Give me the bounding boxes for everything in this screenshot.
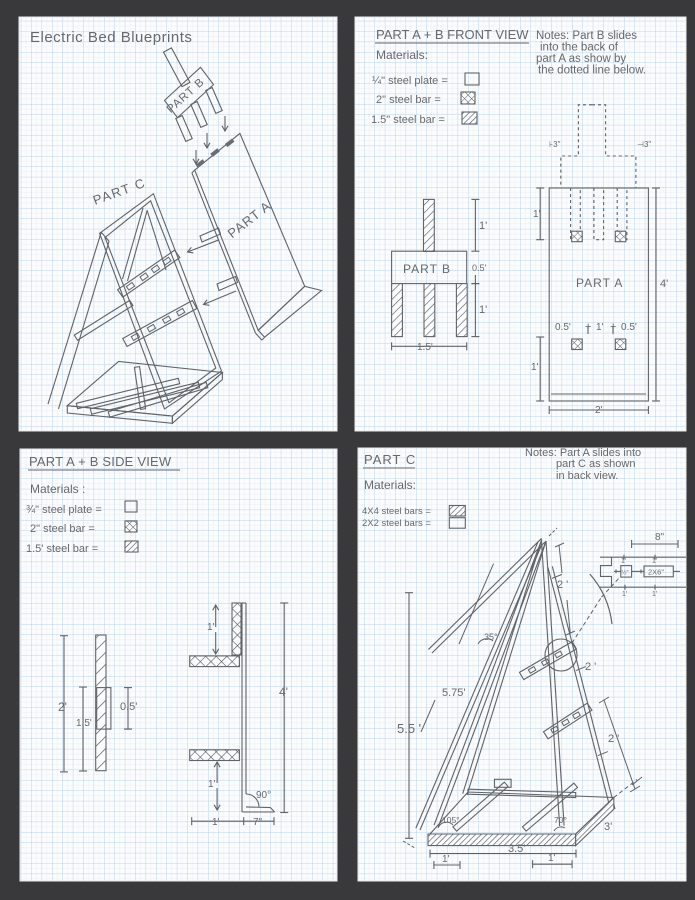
svg-text:1': 1'	[442, 854, 450, 865]
svg-text:4': 4'	[660, 278, 668, 290]
svg-text:0.5': 0.5'	[555, 322, 571, 333]
svg-text:1.5" steel bar =: 1.5" steel bar =	[371, 114, 445, 126]
svg-text:35°: 35°	[484, 632, 498, 642]
svg-text:1': 1'	[479, 304, 487, 316]
svg-text:1.5': 1.5'	[417, 342, 433, 353]
svg-text:part C as shown: part C as shown	[556, 458, 635, 470]
svg-text:1': 1'	[622, 591, 627, 598]
svg-text:¾" steel plate =: ¾" steel plate =	[26, 504, 102, 516]
svg-text:PART A: PART A	[576, 276, 623, 290]
svg-text:Materials :: Materials :	[30, 482, 85, 496]
svg-text:the dotted line below.: the dotted line below.	[538, 65, 646, 77]
svg-text:0.5': 0.5'	[621, 322, 637, 333]
svg-text:1': 1'	[208, 779, 216, 790]
svg-text:2X2 steel bars =: 2X2 steel bars =	[362, 518, 431, 529]
svg-text:8": 8"	[655, 532, 665, 543]
svg-text:2X6": 2X6"	[648, 568, 664, 577]
svg-text:2" steel bar =: 2" steel bar =	[30, 523, 95, 535]
svg-text:⊦3": ⊦3"	[549, 140, 561, 149]
svg-text:70°: 70°	[554, 815, 567, 825]
svg-text:1': 1'	[596, 322, 604, 333]
svg-text:in back view.: in back view.	[556, 470, 618, 482]
svg-text:4X4 steel bars =: 4X4 steel bars =	[362, 506, 431, 517]
svg-text:1': 1'	[212, 817, 220, 828]
svg-text:½": ½"	[622, 570, 629, 577]
svg-text:⊣3": ⊣3"	[637, 140, 651, 149]
svg-text:2 ': 2 '	[585, 661, 596, 673]
svg-text:5.5 ': 5.5 '	[397, 721, 421, 736]
svg-text:1': 1'	[531, 362, 539, 373]
svg-text:2': 2'	[595, 405, 603, 416]
svg-text:5.75': 5.75'	[442, 687, 466, 699]
svg-text:Notes: Part B slides: Notes: Part B slides	[536, 30, 637, 42]
svg-text:Materials:: Materials:	[364, 478, 416, 492]
svg-text:Materials:: Materials:	[376, 48, 428, 62]
svg-text:PART B: PART B	[403, 262, 451, 276]
svg-text:1': 1'	[533, 209, 541, 220]
svg-text:into the back of: into the back of	[540, 42, 619, 54]
svg-text:4': 4'	[279, 685, 288, 699]
svg-text:1': 1'	[207, 622, 215, 633]
svg-text:1.5': 1.5'	[76, 718, 92, 729]
svg-text:PART A + B FRONT VIEW: PART A + B FRONT VIEW	[376, 27, 529, 42]
svg-text:1': 1'	[652, 591, 657, 598]
svg-text:3': 3'	[604, 821, 612, 833]
svg-text:2 ': 2 '	[608, 733, 619, 745]
svg-text:1.5' steel bar =: 1.5' steel bar =	[26, 543, 98, 555]
svg-text:¼" steel plate =: ¼" steel plate =	[372, 75, 448, 87]
svg-text:2 ': 2 '	[557, 579, 568, 591]
svg-text:2" steel bar =: 2" steel bar =	[376, 94, 441, 106]
svg-text:7": 7"	[253, 817, 263, 828]
svg-text:90°: 90°	[256, 790, 271, 801]
svg-text:PART A + B SIDE VIEW: PART A + B SIDE VIEW	[29, 454, 172, 469]
svg-text:part A as show by: part A as show by	[536, 53, 626, 65]
svg-text:Electric Bed Blueprints: Electric Bed Blueprints	[30, 29, 192, 46]
svg-text:2': 2'	[58, 700, 67, 714]
svg-text:1': 1'	[479, 220, 487, 232]
svg-text:PART C: PART C	[364, 452, 416, 467]
svg-text:0.5': 0.5'	[472, 263, 487, 273]
svg-text:1': 1'	[548, 853, 556, 864]
svg-text:0.5': 0.5'	[120, 701, 137, 713]
svg-text:3.5': 3.5'	[508, 843, 525, 855]
